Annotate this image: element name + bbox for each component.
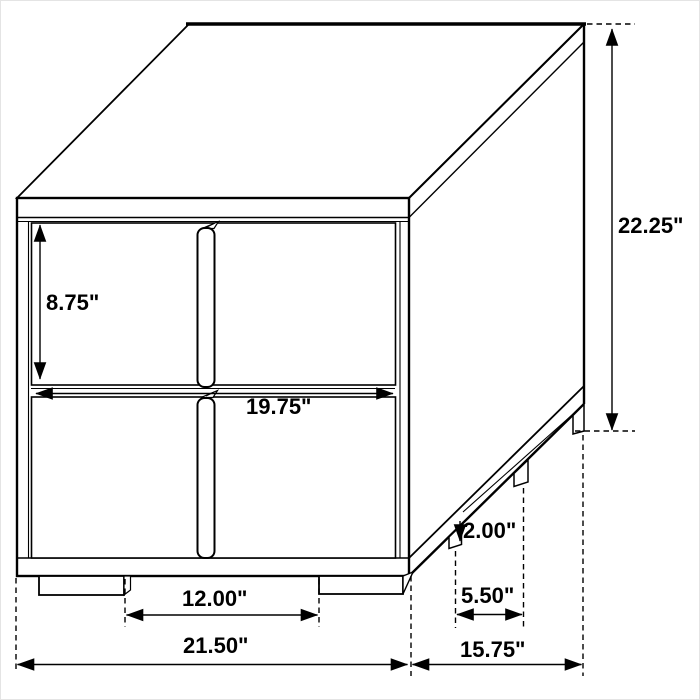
nightstand-line-drawing bbox=[1, 1, 700, 700]
side-leg-middle bbox=[514, 460, 528, 487]
dimension-label-overall-width: 21.50" bbox=[183, 635, 248, 657]
lower-handle-bar bbox=[198, 398, 215, 558]
front-right-leg bbox=[319, 576, 403, 594]
dimension-label-overall-height: 22.25" bbox=[618, 215, 683, 237]
dimension-diagram: 8.75" 19.75" 22.25" 2.00" 5.50" 12.00" 2… bbox=[0, 0, 700, 700]
top-face bbox=[17, 24, 584, 198]
dimension-label-drawer-height: 8.75" bbox=[46, 292, 99, 314]
dimension-label-front-leg-spacing: 12.00" bbox=[182, 588, 247, 610]
front-left-leg bbox=[39, 576, 124, 595]
upper-handle-bar bbox=[198, 228, 215, 387]
dimension-label-side-leg-spacing: 5.50" bbox=[461, 585, 514, 607]
dimension-label-overall-depth: 15.75" bbox=[460, 639, 525, 661]
dimension-label-leg-height: 2.00" bbox=[463, 520, 516, 542]
dimension-label-drawer-width: 19.75" bbox=[246, 396, 311, 418]
